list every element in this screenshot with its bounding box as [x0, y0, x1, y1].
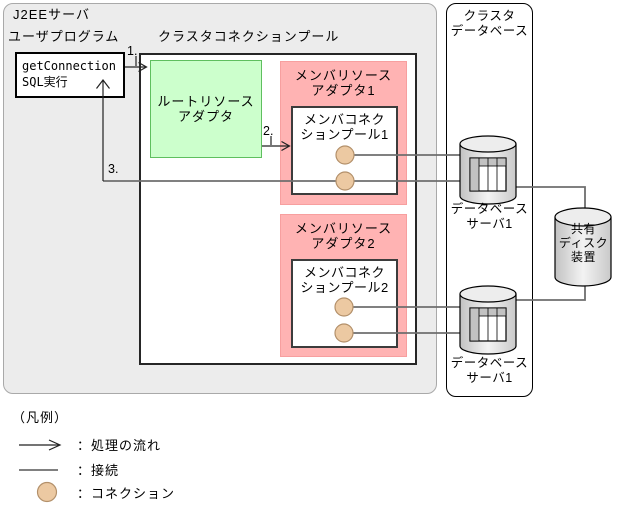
legend-circle-shape [38, 483, 57, 502]
flow-arrow-icon [18, 438, 68, 452]
root-resource-adapter-box: ルートリソース アダプタ [150, 60, 262, 158]
step-label-3: 3. [108, 162, 118, 176]
root-adapter-label-line1: ルートリソース [151, 94, 261, 109]
step-label-2: 2. [263, 124, 273, 138]
user-program-call-box: getConnection SQL実行 [15, 52, 125, 98]
diagram-canvas: J2EEサーバ ユーザプログラム getConnection SQL実行 クラス… [0, 0, 620, 508]
member-adapter1-label: メンバリソース アダプタ1 [281, 62, 406, 98]
member-adapter2-label-line2: アダプタ2 [281, 236, 406, 251]
db-server1-label-line1: データベース [446, 202, 533, 217]
member-resource-adapter2-box: メンバリソース アダプタ2 メンバコネク ションプール2 [280, 214, 407, 357]
cluster-database-container: クラスタ データベース [446, 3, 533, 397]
member-adapter2-label: メンバリソース アダプタ2 [281, 215, 406, 251]
legend-item-flow: ：処理の流れ [18, 435, 161, 454]
member-adapter1-label-line1: メンバリソース [281, 68, 406, 83]
member-pool2-box: メンバコネク ションプール2 [291, 259, 398, 348]
connection-line-icon [18, 463, 60, 477]
db-server1-label: データベース サーバ1 [446, 202, 533, 232]
member-pool2-label-line2: ションプール2 [293, 280, 396, 295]
shared-disk-label-line1: 共有 [555, 222, 612, 236]
user-program-label: ユーザプログラム [8, 29, 119, 44]
member-adapter2-label-line1: メンバリソース [281, 221, 406, 236]
db-server2-label-line1: データベース [446, 356, 533, 371]
member-resource-adapter1-box: メンバリソース アダプタ1 メンバコネク ションプール1 [280, 61, 407, 205]
legend-item-connection-line: ：接続 [18, 460, 119, 479]
legend-title: （凡例） [12, 410, 68, 425]
shared-disk-label-line3: 装置 [555, 250, 612, 264]
legend-item-connection-circle: ：コネクション [36, 481, 175, 503]
shared-disk-label-line2: ディスク [555, 236, 612, 250]
root-adapter-label-line2: アダプタ [151, 109, 261, 124]
legend-circle-label: ：コネクション [77, 483, 175, 502]
member-pool1-box: メンバコネク ションプール1 [291, 106, 398, 195]
getconnection-text: getConnection [22, 58, 123, 74]
legend-flow-label: ：処理の流れ [77, 435, 161, 454]
cluster-database-label-line2: データベース [447, 24, 532, 39]
member-pool1-label-line2: ションプール1 [293, 127, 396, 142]
db-server2-label: データベース サーバ1 [446, 356, 533, 386]
sql-exec-text: SQL実行 [22, 74, 123, 90]
db-server2-label-line2: サーバ1 [446, 371, 533, 386]
member-pool2-label-line1: メンバコネク [293, 265, 396, 280]
legend-connection-label: ：接続 [77, 460, 119, 479]
member-adapter1-label-line2: アダプタ1 [281, 83, 406, 98]
cluster-pool-label: クラスタコネクションプール [158, 29, 339, 44]
member-pool1-label-line1: メンバコネク [293, 112, 396, 127]
connection-circle-icon [36, 481, 58, 503]
shared-disk-label: 共有 ディスク 装置 [555, 222, 612, 264]
cluster-database-label-line1: クラスタ [447, 9, 532, 24]
j2ee-server-label: J2EEサーバ [13, 7, 90, 22]
db-server1-label-line2: サーバ1 [446, 217, 533, 232]
step-label-1: 1. [127, 44, 137, 58]
